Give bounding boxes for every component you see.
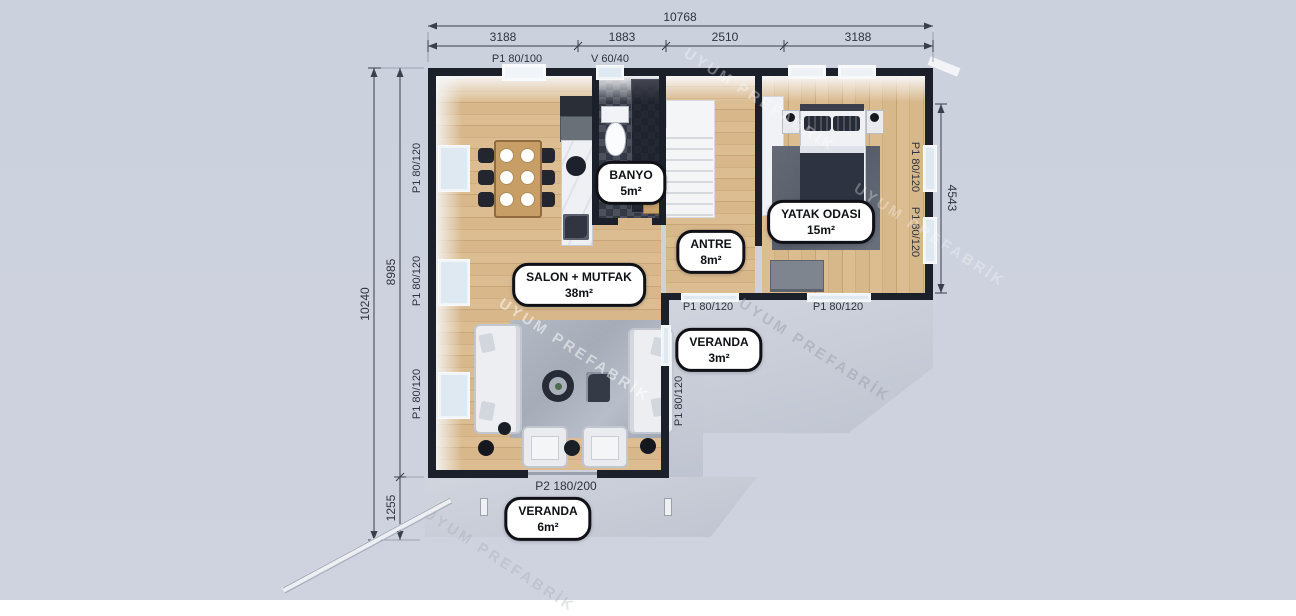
label-veranda-window-2: P1 80/120: [813, 301, 863, 313]
veranda-post: [480, 498, 488, 516]
wall-salon-right-upper: [661, 297, 669, 325]
dim-top-total: 10768: [663, 10, 696, 24]
plate: [521, 193, 534, 206]
wall-veranda-side-b: [737, 293, 807, 300]
plate: [500, 193, 513, 206]
left-window-2: [438, 259, 470, 306]
wall-bedroom-right-c: [925, 262, 933, 300]
room-badge-veranda-6: VERANDA 6m²: [504, 497, 591, 541]
room-name: VERANDA: [689, 335, 748, 351]
label-left-window-2: P1 80/120: [411, 256, 423, 306]
plate: [521, 149, 534, 162]
staircase-treads: [666, 128, 713, 216]
dining-chair: [478, 192, 494, 207]
dim-top-segment-4: 3188: [845, 30, 872, 44]
label-veranda-door: P2 180/200: [535, 479, 596, 493]
armchair-cushion: [591, 436, 619, 460]
dining-chair: [478, 148, 494, 163]
room-name: ANTRE: [690, 237, 731, 253]
label-salon-side-window: P1 80/120: [673, 376, 685, 426]
wall-bedroom-right-a: [925, 68, 933, 145]
dresser: [770, 260, 824, 292]
room-name: VERANDA: [518, 504, 577, 520]
bedroom-top-window-1: [788, 65, 826, 79]
dim-left-lower: 1255: [384, 495, 398, 522]
wall-antre-bedroom-divider: [755, 76, 762, 246]
label-entry-door: P1 80/100: [492, 53, 542, 65]
kitchen-cabinet: [560, 116, 594, 142]
bath-vent-window: [596, 65, 624, 80]
floor-lamp: [478, 440, 494, 456]
plant: [555, 383, 562, 390]
room-name: YATAK ODASI: [781, 207, 861, 223]
bedroom-top-window-2: [838, 65, 876, 79]
wall-salon-bottom-left: [428, 470, 528, 478]
wall-bath-right: [659, 76, 666, 225]
room-badge-salon-mutfak: SALON + MUTFAK 38m²: [512, 263, 646, 307]
room-badge-veranda-3: VERANDA 3m²: [675, 328, 762, 372]
dim-right-height: 4543: [945, 185, 959, 212]
pillow: [833, 116, 860, 131]
room-name: BANYO: [609, 168, 652, 184]
toilet-bowl: [605, 122, 626, 156]
left-window-3: [438, 372, 470, 419]
label-right-window-1: P1 80/120: [909, 142, 921, 192]
dining-chair: [478, 170, 494, 185]
label-right-window-2: P1 80/120: [909, 207, 921, 257]
kitchen-cabinet-tall: [560, 96, 592, 116]
dim-top-segment-2: 1883: [609, 30, 636, 44]
floor-plan-canvas: UYUM PREFABRİK UYUM PREFABRİK UYUM PREFA…: [0, 0, 1296, 600]
floor-lamp: [640, 438, 656, 454]
dim-left-total: 10240: [358, 287, 372, 320]
room-area: 6m²: [518, 520, 577, 536]
veranda-door-threshold: [528, 472, 597, 475]
label-veranda-window-1: P1 80/120: [683, 301, 733, 313]
bed-headboard: [800, 104, 864, 111]
room-area: 15m²: [781, 223, 861, 239]
salon-side-window: [661, 325, 671, 366]
round-table: [498, 422, 511, 435]
pillow: [804, 116, 831, 131]
wall-salon-right-lower: [661, 364, 669, 470]
room-name: SALON + MUTFAK: [526, 270, 632, 286]
wall-bath-bottom-a: [592, 218, 618, 225]
entry-door: [502, 64, 546, 81]
wall-veranda-side-c: [869, 293, 933, 300]
veranda-post: [664, 498, 672, 516]
label-bath-vent: V 60/40: [591, 53, 629, 65]
wall-left: [428, 68, 436, 477]
room-area: 5m²: [609, 184, 652, 200]
wall-salon-bottom-right: [597, 470, 669, 478]
wall-bath-left: [592, 76, 599, 225]
dim-top-segment-3: 2510: [712, 30, 739, 44]
label-left-window-1: P1 80/120: [411, 143, 423, 193]
label-left-window-3: P1 80/120: [411, 369, 423, 419]
room-area: 8m²: [690, 253, 731, 269]
dim-left-upper: 8985: [384, 259, 398, 286]
room-badge-antre: ANTRE 8m²: [676, 230, 745, 274]
room-badge-banyo: BANYO 5m²: [595, 161, 666, 205]
armchair-cushion: [531, 436, 559, 460]
bedroom-right-window-2: [923, 217, 937, 264]
bedside-lamp: [870, 113, 879, 122]
round-table: [564, 440, 580, 456]
toilet-tank: [601, 106, 629, 123]
wall-veranda-side-a: [661, 293, 681, 300]
plate: [500, 171, 513, 184]
plate: [521, 171, 534, 184]
bedside-lamp: [786, 113, 795, 122]
side-table: [586, 372, 610, 402]
room-area: 3m²: [689, 351, 748, 367]
room-area: 38m²: [526, 286, 632, 302]
left-window-1: [438, 145, 470, 192]
wall-bedroom-right-b: [925, 190, 933, 217]
bedroom-right-window-1: [923, 145, 937, 192]
dim-top-segment-1: 3188: [490, 30, 517, 44]
cooktop: [563, 214, 589, 240]
plate: [500, 149, 513, 162]
kitchen-sink: [566, 156, 586, 176]
bed-fold: [800, 146, 864, 153]
room-badge-yatak-odasi: YATAK ODASI 15m²: [767, 200, 875, 244]
